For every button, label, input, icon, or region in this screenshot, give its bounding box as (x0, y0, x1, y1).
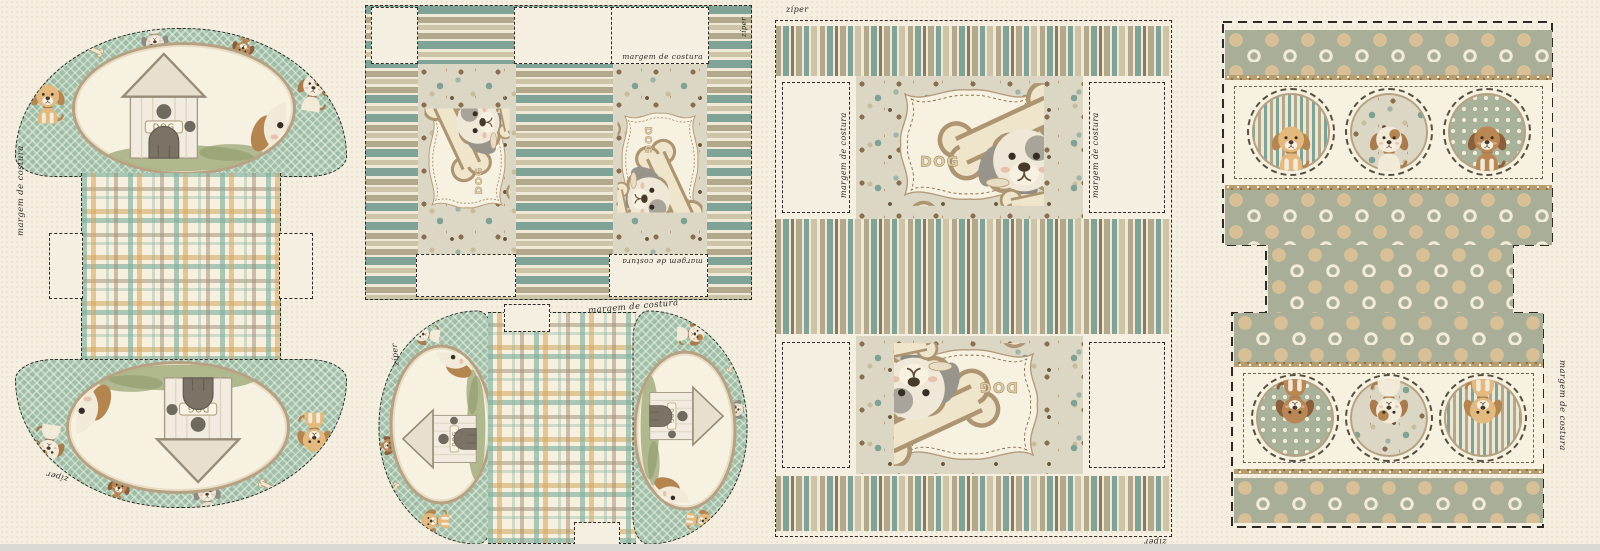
dog-icon (1361, 117, 1417, 171)
polka-fabric (1225, 30, 1552, 75)
selvage-edge (0, 544, 1600, 551)
dog-house-medallion (633, 351, 736, 510)
dog-label-scene (618, 109, 703, 213)
stitch-line (1089, 82, 1165, 213)
plaid-band (81, 173, 281, 361)
zip-bag-template: zíper margem de costura margem de costur… (775, 20, 1172, 537)
dog-house-medallion (72, 42, 296, 174)
side-tab-right (279, 233, 313, 299)
stripe-band (776, 476, 1171, 531)
seam-allowance-text: margem de costura (16, 126, 26, 236)
dog-house-scene (76, 361, 281, 493)
dog-label (425, 109, 510, 213)
cut-notch (514, 7, 613, 64)
seam-allowance-text: margem de costura (622, 52, 703, 61)
dog-label-scene (894, 343, 1044, 466)
dog-icon (416, 504, 451, 539)
dog-label (618, 109, 703, 213)
pillow-flap-right (633, 311, 748, 545)
bone-icon (25, 36, 47, 52)
cut-notch: margem de costura (611, 7, 709, 64)
stitch-line (782, 342, 850, 468)
zipper-text: zíper (786, 5, 808, 14)
dog-circle (1345, 88, 1433, 176)
dog-label (894, 343, 1044, 466)
pillow-box-piece-vertical (15, 28, 345, 506)
dog-icon (23, 76, 73, 126)
seam-allowance-text: margem de costura (1557, 360, 1567, 490)
dog-label-scene (894, 83, 1044, 206)
glitter-strip (1234, 362, 1543, 367)
zipper-text: zíper (740, 9, 748, 37)
plaid-band (488, 312, 636, 544)
side-flap: margem de costura (1083, 76, 1171, 219)
dog-circle (1251, 374, 1339, 462)
stripe-band (776, 26, 1171, 76)
box-template-striped: margem de costura margem de costura zípe… (365, 5, 752, 300)
bone-icon (256, 476, 282, 496)
side-flap (1083, 336, 1171, 474)
cut-notch (416, 254, 516, 297)
dog-house-medallion (66, 361, 290, 493)
dog-circle (1439, 374, 1527, 462)
seam-allowance-text: margem de costura (839, 98, 848, 198)
dog-house-medallion (390, 345, 493, 504)
dog-circle-band (1234, 362, 1543, 474)
bone-icon (724, 357, 738, 375)
dog-label-scene (425, 109, 510, 213)
polka-fabric (1225, 190, 1552, 245)
polka-fabric (1234, 313, 1543, 362)
dog-circle (1345, 374, 1433, 462)
side-tab-top (504, 304, 550, 332)
dog-house-scene (636, 359, 734, 503)
dog-house-scene (82, 42, 287, 174)
glitter-strip (1225, 75, 1552, 80)
dog-icon (1263, 117, 1319, 171)
pillow-box-piece-horizontal (378, 310, 746, 544)
dog-icon (1267, 379, 1323, 433)
polka-fabric (1234, 478, 1543, 523)
dog-icon (1361, 379, 1417, 433)
bone-icon (81, 39, 107, 59)
pillow-flap-bottom (15, 359, 347, 508)
polka-pouch-panel: margem de costura (1205, 20, 1590, 530)
side-flap: margem de costura (776, 76, 856, 219)
dog-house-scene (392, 353, 490, 497)
dog-icon (1455, 379, 1511, 433)
cut-notch: margem de costura (609, 254, 708, 297)
seam-allowance-text: margem de costura (622, 257, 703, 266)
cut-notch (371, 7, 418, 64)
glitter-strip (1234, 469, 1543, 474)
stitch-line (1089, 342, 1165, 468)
stripe-band (776, 219, 1171, 334)
dog-circle (1247, 88, 1335, 176)
dog-circle (1443, 88, 1531, 176)
pillow-flap-top (15, 28, 347, 177)
side-flap (776, 336, 856, 474)
dog-circle-band (1225, 75, 1552, 190)
dog-label (894, 83, 1044, 206)
zipper-text: zíper (390, 343, 401, 366)
dog-icon (676, 316, 711, 351)
side-tab-left (49, 233, 83, 299)
dog-icon (290, 410, 340, 460)
seam-allowance-text: margem de costura (1091, 98, 1100, 198)
fabric-sewing-panel: { "labels": { "seam_allowance": "margem … (0, 0, 1600, 551)
bone-icon (388, 480, 402, 498)
dog-icon (1459, 117, 1515, 171)
polka-fabric (1268, 245, 1513, 313)
